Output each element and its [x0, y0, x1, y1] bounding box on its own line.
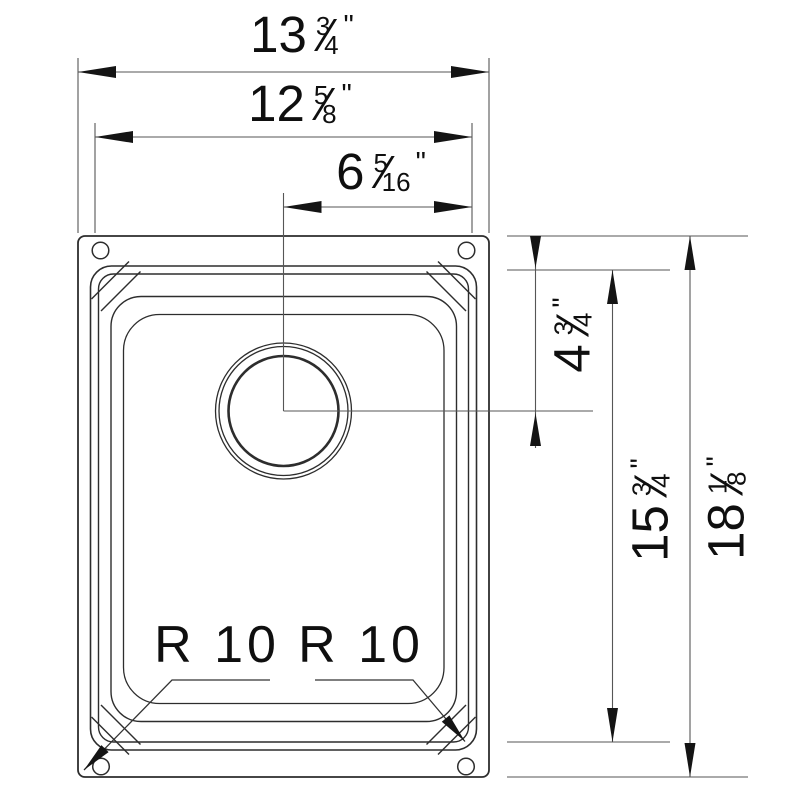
arrow-opening-width-left — [95, 131, 133, 143]
radius-label-right: R 10 — [298, 619, 424, 671]
dim-text-opening-width: 125⁄8" — [248, 78, 350, 129]
chamfer-top-right-outer — [438, 262, 476, 300]
dim-text-drain-offset: 65⁄16" — [336, 146, 424, 197]
dim-fraction: 1⁄8 — [698, 471, 755, 494]
arrow-opening-height-bottom — [607, 708, 618, 742]
chamfer-top-right-inner — [427, 272, 467, 312]
dim-text-overall-width: 133⁄4" — [250, 9, 352, 60]
dim-text-drain-depth: 43⁄4" — [547, 299, 598, 372]
dim-whole: 12 — [248, 75, 305, 132]
technical-drawing-canvas: 133⁄4" 125⁄8" 65⁄16" 43⁄4" 153⁄4" 181⁄8"… — [0, 0, 800, 800]
arrow-drain-offset-right — [434, 201, 472, 213]
leader-r10-left — [84, 680, 270, 770]
arrow-overall-width-right — [451, 66, 489, 78]
dim-fraction: 3⁄4 — [316, 6, 339, 63]
sink-technical-drawing — [0, 0, 800, 800]
mounting-hole-top-left — [92, 242, 109, 259]
chamfer-bottom-left-inner — [101, 705, 141, 745]
radius-leaders — [84, 680, 465, 770]
arrow-opening-width-right — [434, 131, 472, 143]
dim-fraction: 5⁄16 — [374, 143, 411, 200]
dim-fraction: 5⁄8 — [314, 75, 337, 132]
dim-whole: 18 — [698, 503, 755, 560]
chamfer-bottom-left-outer — [92, 717, 130, 755]
leader-r10-right — [315, 680, 465, 742]
arrow-drain-depth-bottom — [530, 413, 541, 446]
leader-arrow-r10-left — [84, 745, 109, 770]
inch-mark: " — [344, 12, 352, 41]
inch-mark: " — [342, 81, 350, 110]
leader-arrow-r10-right — [442, 715, 465, 741]
arrow-drain-offset-left — [284, 201, 322, 213]
dim-text-opening-height: 153⁄4" — [625, 460, 676, 562]
mounting-hole-top-right — [458, 242, 475, 259]
inch-mark: " — [416, 149, 424, 178]
dim-fraction: 3⁄4 — [622, 473, 679, 496]
radius-label-left: R 10 — [154, 619, 280, 671]
chamfer-top-left-outer — [92, 262, 130, 300]
dim-whole: 15 — [622, 505, 679, 562]
dim-whole: 13 — [250, 6, 307, 63]
arrow-overall-height-top — [685, 236, 696, 270]
arrow-overall-height-bottom — [685, 743, 696, 777]
inch-mark: " — [704, 458, 733, 466]
dim-whole: 4 — [544, 344, 601, 372]
arrow-drain-depth-top — [530, 236, 541, 268]
arrow-overall-width-left — [78, 66, 116, 78]
arrow-opening-height-top — [607, 270, 618, 304]
dim-text-overall-height: 181⁄8" — [701, 458, 752, 560]
dim-whole: 6 — [336, 143, 364, 200]
inch-mark: " — [628, 460, 657, 468]
dim-fraction: 3⁄4 — [544, 313, 601, 336]
inch-mark: " — [550, 299, 579, 307]
mounting-hole-bottom-right — [458, 758, 475, 775]
